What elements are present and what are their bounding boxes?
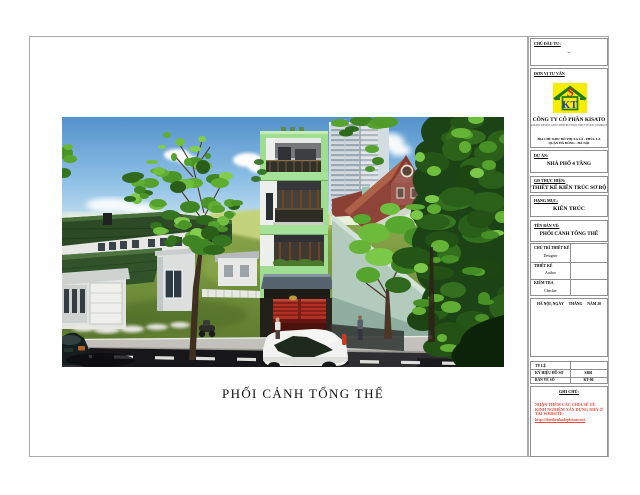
svg-text:KT: KT (562, 100, 577, 111)
svg-text:S: S (567, 84, 574, 99)
